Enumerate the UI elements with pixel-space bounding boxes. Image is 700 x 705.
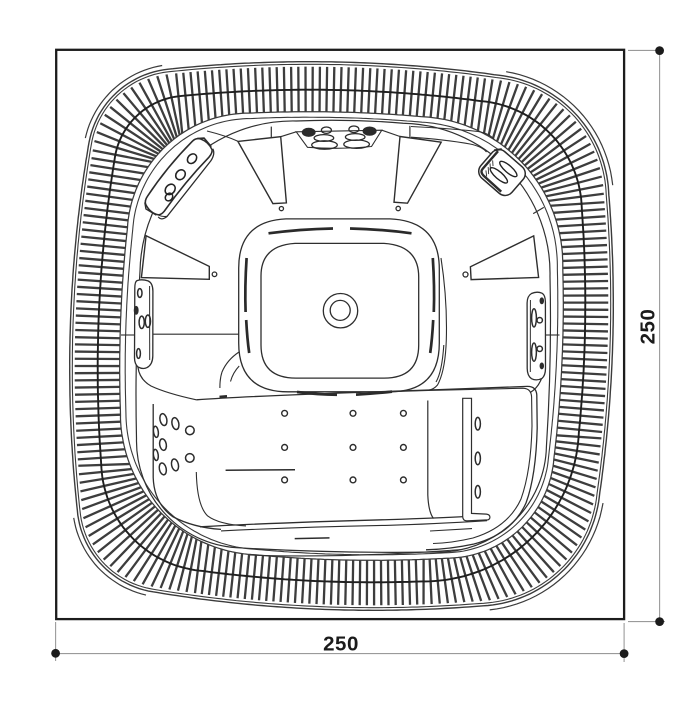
svg-text:250: 250 — [323, 633, 359, 656]
svg-text:250: 250 — [637, 309, 660, 345]
